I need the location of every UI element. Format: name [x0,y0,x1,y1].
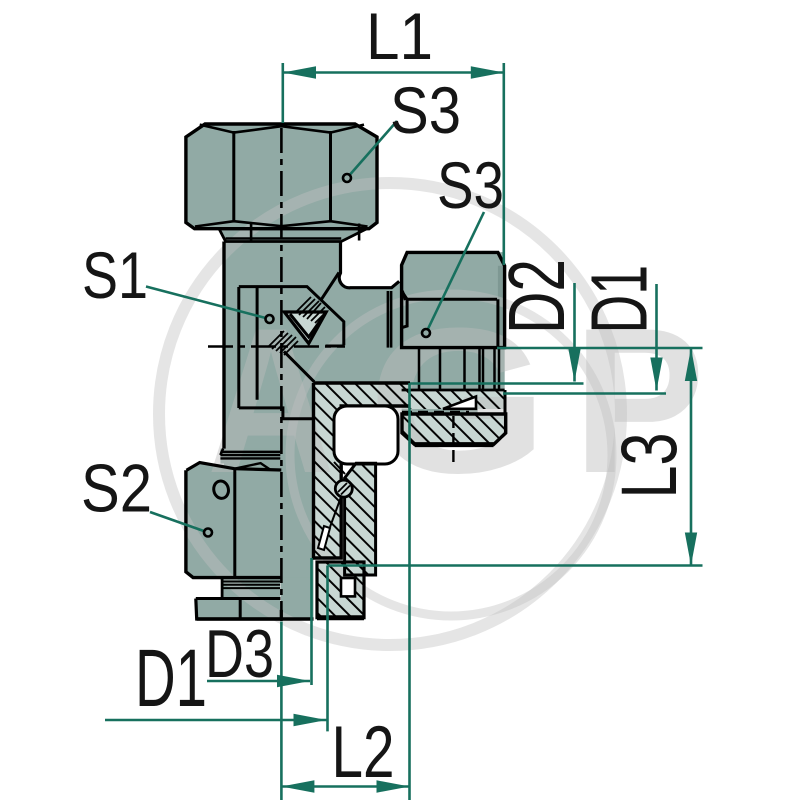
svg-text:L1: L1 [366,0,433,73]
svg-text:D3: D3 [205,616,274,692]
svg-text:S3: S3 [437,148,504,222]
svg-text:D1: D1 [575,265,664,334]
svg-text:S1: S1 [82,238,148,312]
svg-text:L2: L2 [332,712,395,793]
svg-text:D2: D2 [492,259,581,334]
svg-text:D1: D1 [135,633,207,724]
svg-text:S2: S2 [81,451,152,527]
svg-text:S3: S3 [390,73,461,147]
svg-text:L3: L3 [604,433,693,499]
